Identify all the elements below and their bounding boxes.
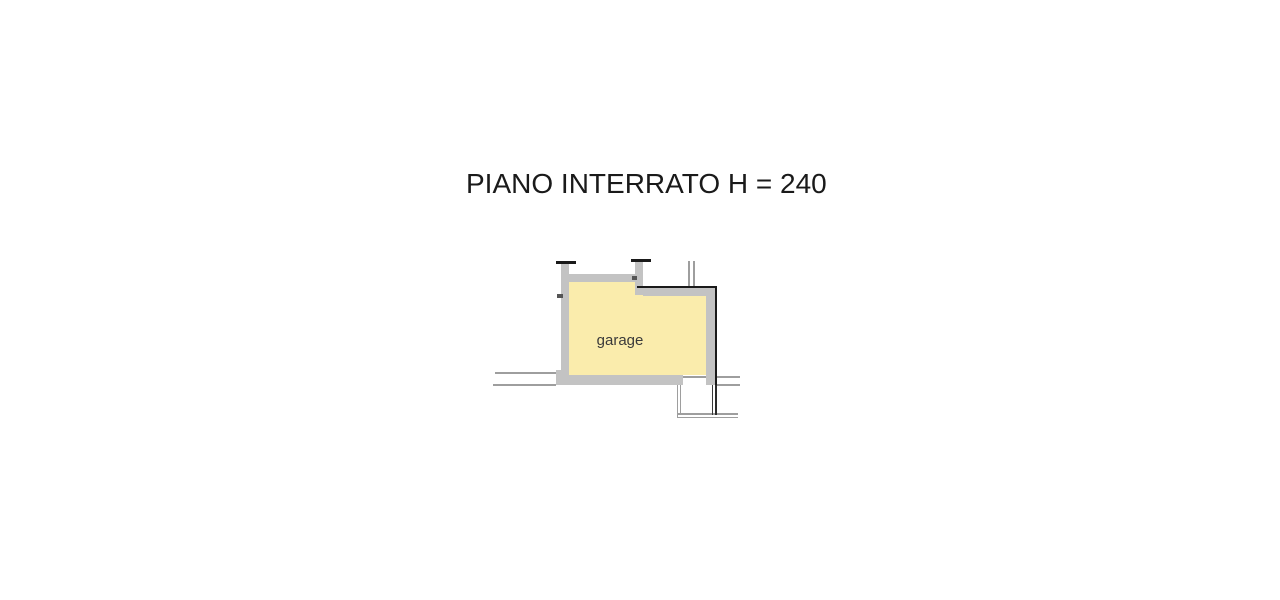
door-opening-line <box>683 376 706 378</box>
ramp-outline-bottom-line-2 <box>677 417 739 419</box>
wall-edge-right <box>715 286 717 385</box>
wall-bottom <box>556 375 683 385</box>
ramp-outline-right-line-1 <box>712 385 714 415</box>
section-line-left-upper <box>495 372 561 374</box>
section-line-right-upper <box>717 376 740 378</box>
ramp-outline-right-line-2 <box>715 385 717 415</box>
wall-junction-tick-left <box>557 294 563 298</box>
section-line-left-lower <box>493 384 556 386</box>
room-label-garage: garage <box>570 332 670 349</box>
wall-top-right-section <box>643 288 715 296</box>
wall-edge-top-right <box>637 286 717 288</box>
ramp-outline-left-line-2 <box>680 385 681 415</box>
wall-cap-left <box>556 261 576 264</box>
wall-cap-step <box>631 259 651 262</box>
wall-right <box>706 288 715 385</box>
ramp-outline-bottom-line-1 <box>677 413 739 415</box>
floorplan-canvas: PIANO INTERRATO H = 240 <box>0 0 1280 600</box>
section-line-right-lower <box>717 384 740 386</box>
wall-junction-tick-step <box>632 276 637 280</box>
wall-bottom-left-step <box>556 370 565 375</box>
page-title: PIANO INTERRATO H = 240 <box>466 168 827 200</box>
wall-top-left-section <box>561 274 643 282</box>
